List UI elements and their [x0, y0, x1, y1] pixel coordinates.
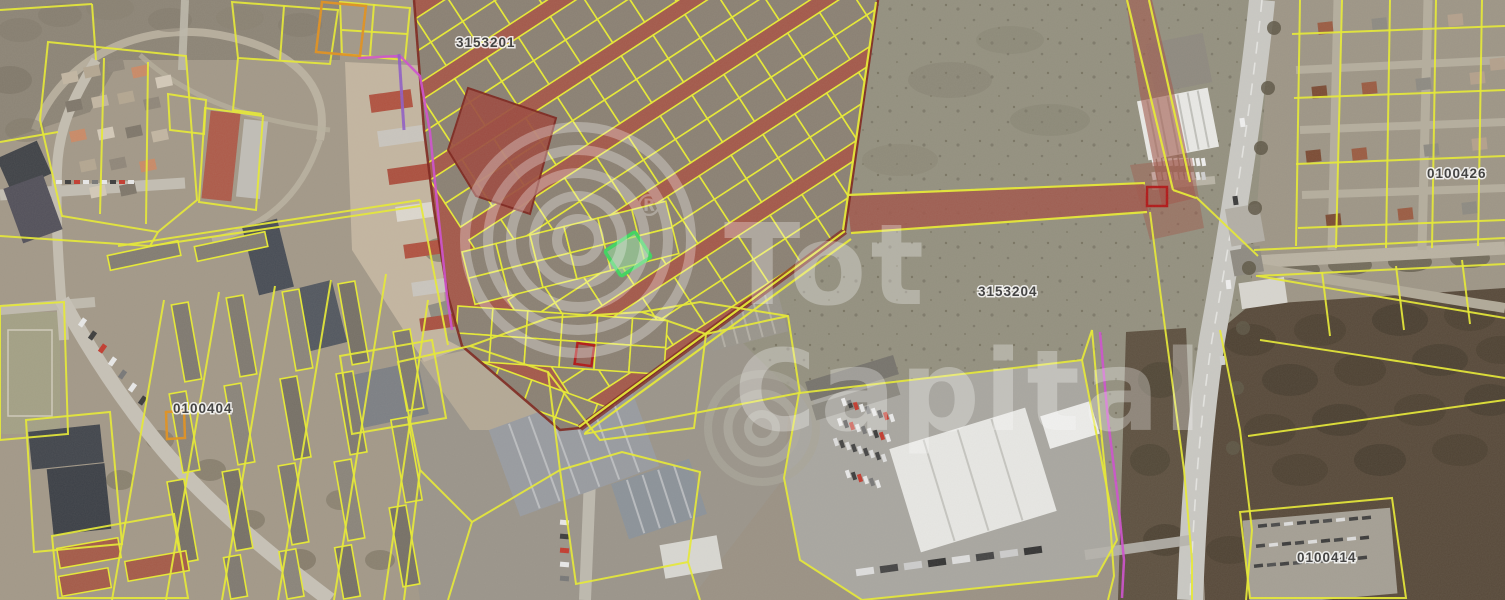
- house: [1325, 213, 1341, 227]
- vehicle: [65, 180, 71, 184]
- vegetation-patch: [1010, 104, 1090, 136]
- tree: [1254, 141, 1268, 155]
- vehicle: [560, 534, 569, 540]
- tree: [1242, 261, 1256, 275]
- vehicle: [92, 180, 98, 184]
- parcel-label-0100426: 0100426: [1427, 166, 1487, 181]
- watermark-word-2: Capital: [734, 327, 1206, 457]
- house: [1461, 201, 1477, 215]
- house: [1305, 149, 1321, 163]
- red-flag-parcel: [1147, 187, 1167, 206]
- vehicle: [56, 180, 62, 184]
- tree: [1261, 81, 1275, 95]
- vehicle: [119, 180, 125, 184]
- vehicle: [128, 180, 134, 184]
- vegetation-patch: [1354, 444, 1406, 476]
- vehicle: [119, 180, 125, 184]
- house: [1469, 71, 1485, 85]
- vehicle: [560, 562, 569, 568]
- tree: [1248, 201, 1262, 215]
- house: [1489, 57, 1505, 71]
- school-building: [47, 463, 112, 535]
- house: [1371, 17, 1387, 31]
- vehicle: [110, 180, 116, 184]
- house: [1415, 77, 1431, 91]
- vehicle: [560, 534, 569, 540]
- tree: [1236, 321, 1250, 335]
- house: [1397, 207, 1413, 221]
- vegetation-patch: [106, 470, 134, 490]
- vehicle: [83, 180, 89, 184]
- vehicle: [65, 180, 71, 184]
- watermark-word-1: Tot: [724, 201, 928, 331]
- vegetation-patch: [976, 26, 1044, 54]
- school-building: [28, 424, 104, 469]
- vehicle: [101, 180, 107, 184]
- vegetation-patch: [0, 18, 42, 42]
- vehicle: [1226, 280, 1232, 289]
- vehicle: [74, 180, 80, 184]
- vehicle: [128, 180, 134, 184]
- vegetation-patch: [908, 62, 992, 98]
- vegetation-patch: [1432, 434, 1488, 466]
- house: [1305, 149, 1321, 163]
- vehicle: [74, 180, 80, 184]
- house: [1361, 81, 1377, 95]
- tree: [1267, 21, 1281, 35]
- vehicle: [92, 180, 98, 184]
- house: [1447, 13, 1463, 27]
- vegetation-patch: [1262, 364, 1318, 396]
- house: [1423, 143, 1439, 157]
- vegetation-patch: [862, 144, 938, 176]
- vegetation-patch: [1294, 314, 1346, 346]
- house: [1371, 17, 1387, 31]
- house: [1423, 143, 1439, 157]
- house: [1325, 213, 1341, 227]
- school-building: [47, 463, 112, 535]
- road: [182, 0, 185, 70]
- vehicle: [83, 180, 89, 184]
- vehicle: [560, 548, 569, 554]
- vehicle: [560, 548, 569, 554]
- vehicle: [560, 576, 569, 582]
- house: [1397, 207, 1413, 221]
- school-building: [28, 424, 104, 469]
- vehicle: [101, 180, 107, 184]
- parcel-label-3153204: 3153204: [978, 284, 1038, 299]
- house: [1447, 13, 1463, 27]
- parcel-label-0100414: 0100414: [1297, 550, 1357, 565]
- satellite-map: ® Tot Capital 3153201 3153204 0100404 01…: [0, 0, 1505, 600]
- vehicle: [110, 180, 116, 184]
- vegetation-patch: [1372, 304, 1428, 336]
- watermark-registered-mark: ®: [634, 189, 668, 224]
- house: [1489, 57, 1505, 71]
- parcel-label-3153201: 3153201: [456, 35, 516, 50]
- house: [1351, 147, 1367, 161]
- vegetation-patch: [216, 6, 264, 30]
- house: [1351, 147, 1367, 161]
- house: [1361, 81, 1377, 95]
- parcel-label-0100404: 0100404: [173, 401, 233, 416]
- tree: [1226, 441, 1240, 455]
- vehicle: [560, 562, 569, 568]
- house: [1415, 77, 1431, 91]
- vehicle: [1226, 280, 1232, 289]
- house: [1461, 201, 1477, 215]
- vehicle: [56, 180, 62, 184]
- vegetation-patch: [1224, 324, 1276, 356]
- map-canvas[interactable]: ® Tot Capital 3153201 3153204 0100404 01…: [0, 0, 1505, 600]
- house: [1469, 71, 1485, 85]
- vegetation-patch: [1272, 454, 1328, 486]
- vegetation-patch: [278, 13, 322, 37]
- vehicle: [560, 576, 569, 582]
